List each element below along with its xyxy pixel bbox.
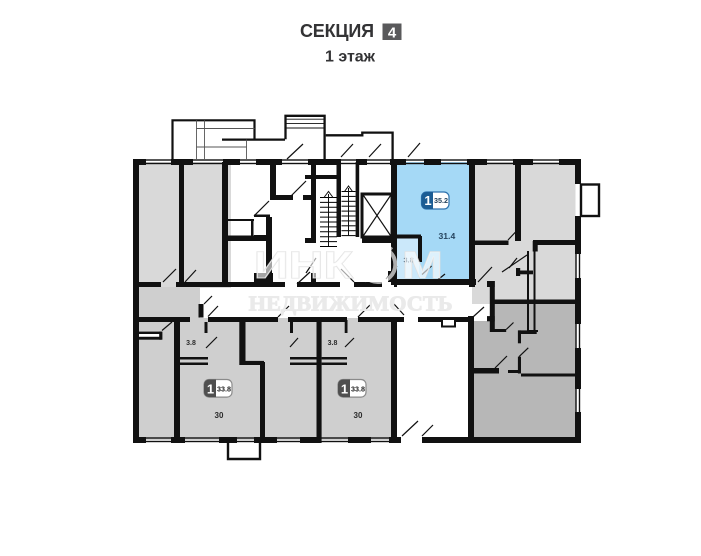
svg-text:3.8: 3.8	[328, 340, 338, 347]
svg-text:33.8: 33.8	[217, 385, 231, 394]
svg-text:НЕДВИЖИМОСТЬ: НЕДВИЖИМОСТЬ	[249, 292, 453, 316]
svg-text:30: 30	[354, 411, 363, 420]
svg-text:1: 1	[424, 193, 431, 208]
svg-text:3.8: 3.8	[186, 340, 196, 347]
svg-text:СЕКЦИЯ: СЕКЦИЯ	[300, 21, 374, 41]
svg-text:30: 30	[215, 411, 224, 420]
svg-text:1: 1	[207, 382, 214, 397]
svg-text:4: 4	[388, 25, 397, 42]
svg-text:33.8: 33.8	[351, 385, 365, 394]
svg-text:35.2: 35.2	[434, 196, 448, 205]
svg-text:ИНК: ИНК	[254, 245, 354, 287]
svg-text:1: 1	[341, 382, 348, 397]
svg-text:31.4: 31.4	[439, 231, 456, 241]
svg-text:1 этаж: 1 этаж	[325, 49, 376, 66]
svg-text:М: М	[402, 245, 443, 287]
